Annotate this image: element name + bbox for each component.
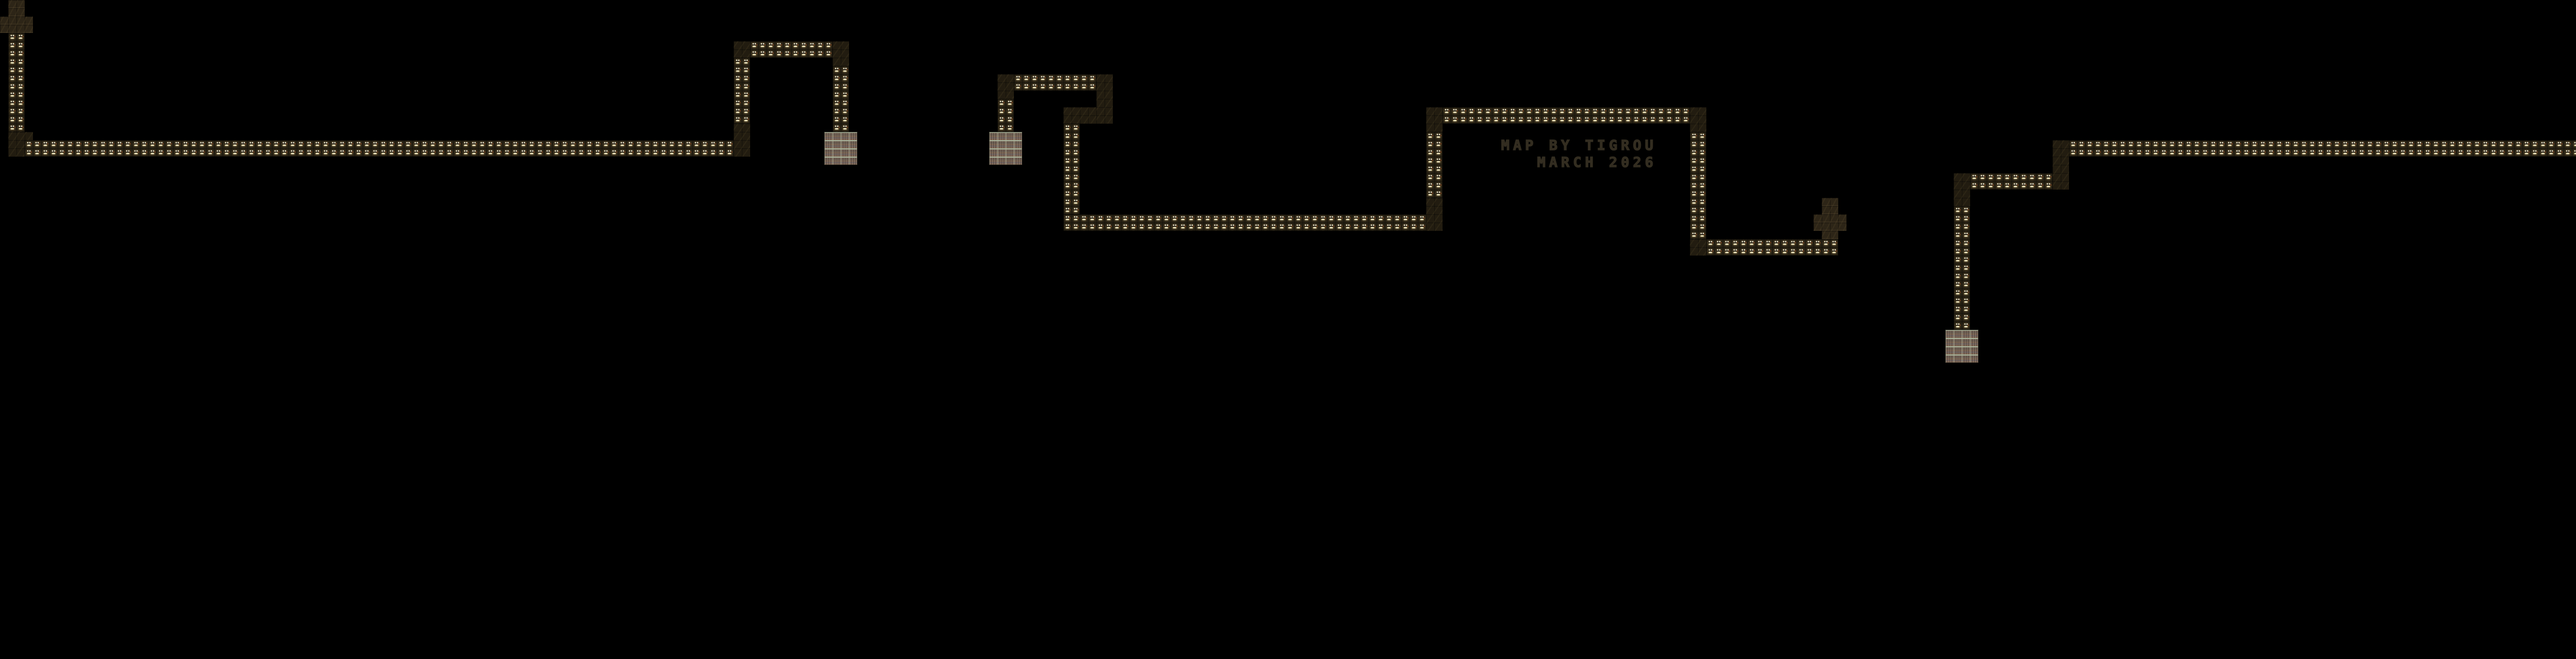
brick-room-block [989,132,1022,165]
corridor-horizontal [25,140,734,157]
map-credit-line2: MARCH 2026 [1501,154,1657,171]
rock-corner-pad [997,74,1014,99]
corridor-horizontal [1063,214,1443,231]
rock-corner-pad [1690,239,1706,256]
rock-corner-pad [1954,173,1970,206]
rock-corner-pad [1426,198,1443,231]
corridor-horizontal [750,41,833,58]
brick-room-block [824,132,857,165]
corridor-vertical [734,58,750,124]
rock-corner-pad [734,124,750,157]
corridor-vertical [1426,132,1443,198]
corridor-horizontal [2069,140,2576,157]
corridor-vertical [1690,132,1706,239]
rock-corner-pad [2053,140,2069,190]
rock-corner-pad [1426,107,1443,132]
corridor-vertical [997,99,1014,132]
cross-cap-arm [1814,214,1846,231]
rock-corner-pad [734,41,750,58]
map-credit-line1: MAP BY TIGROU [1501,137,1657,154]
corridor-horizontal [1014,74,1096,91]
map-canvas: MAP BY TIGROU MARCH 2026 [0,0,2576,659]
corridor-horizontal [1970,173,2053,190]
corridor-vertical [8,33,25,132]
corridor-vertical [833,66,849,132]
rock-corner-pad [1063,107,1096,124]
cross-cap-arm [0,16,33,33]
corridor-vertical [1063,124,1080,214]
rock-corner-pad [1690,107,1706,132]
map-credit: MAP BY TIGROU MARCH 2026 [1501,137,1657,171]
corridor-vertical [1954,206,1970,330]
rock-corner-pad [1096,74,1113,124]
corridor-horizontal [1443,107,1690,124]
rock-corner-pad [833,41,849,66]
corridor-horizontal [1706,239,1838,256]
brick-room-block [1945,330,1978,363]
